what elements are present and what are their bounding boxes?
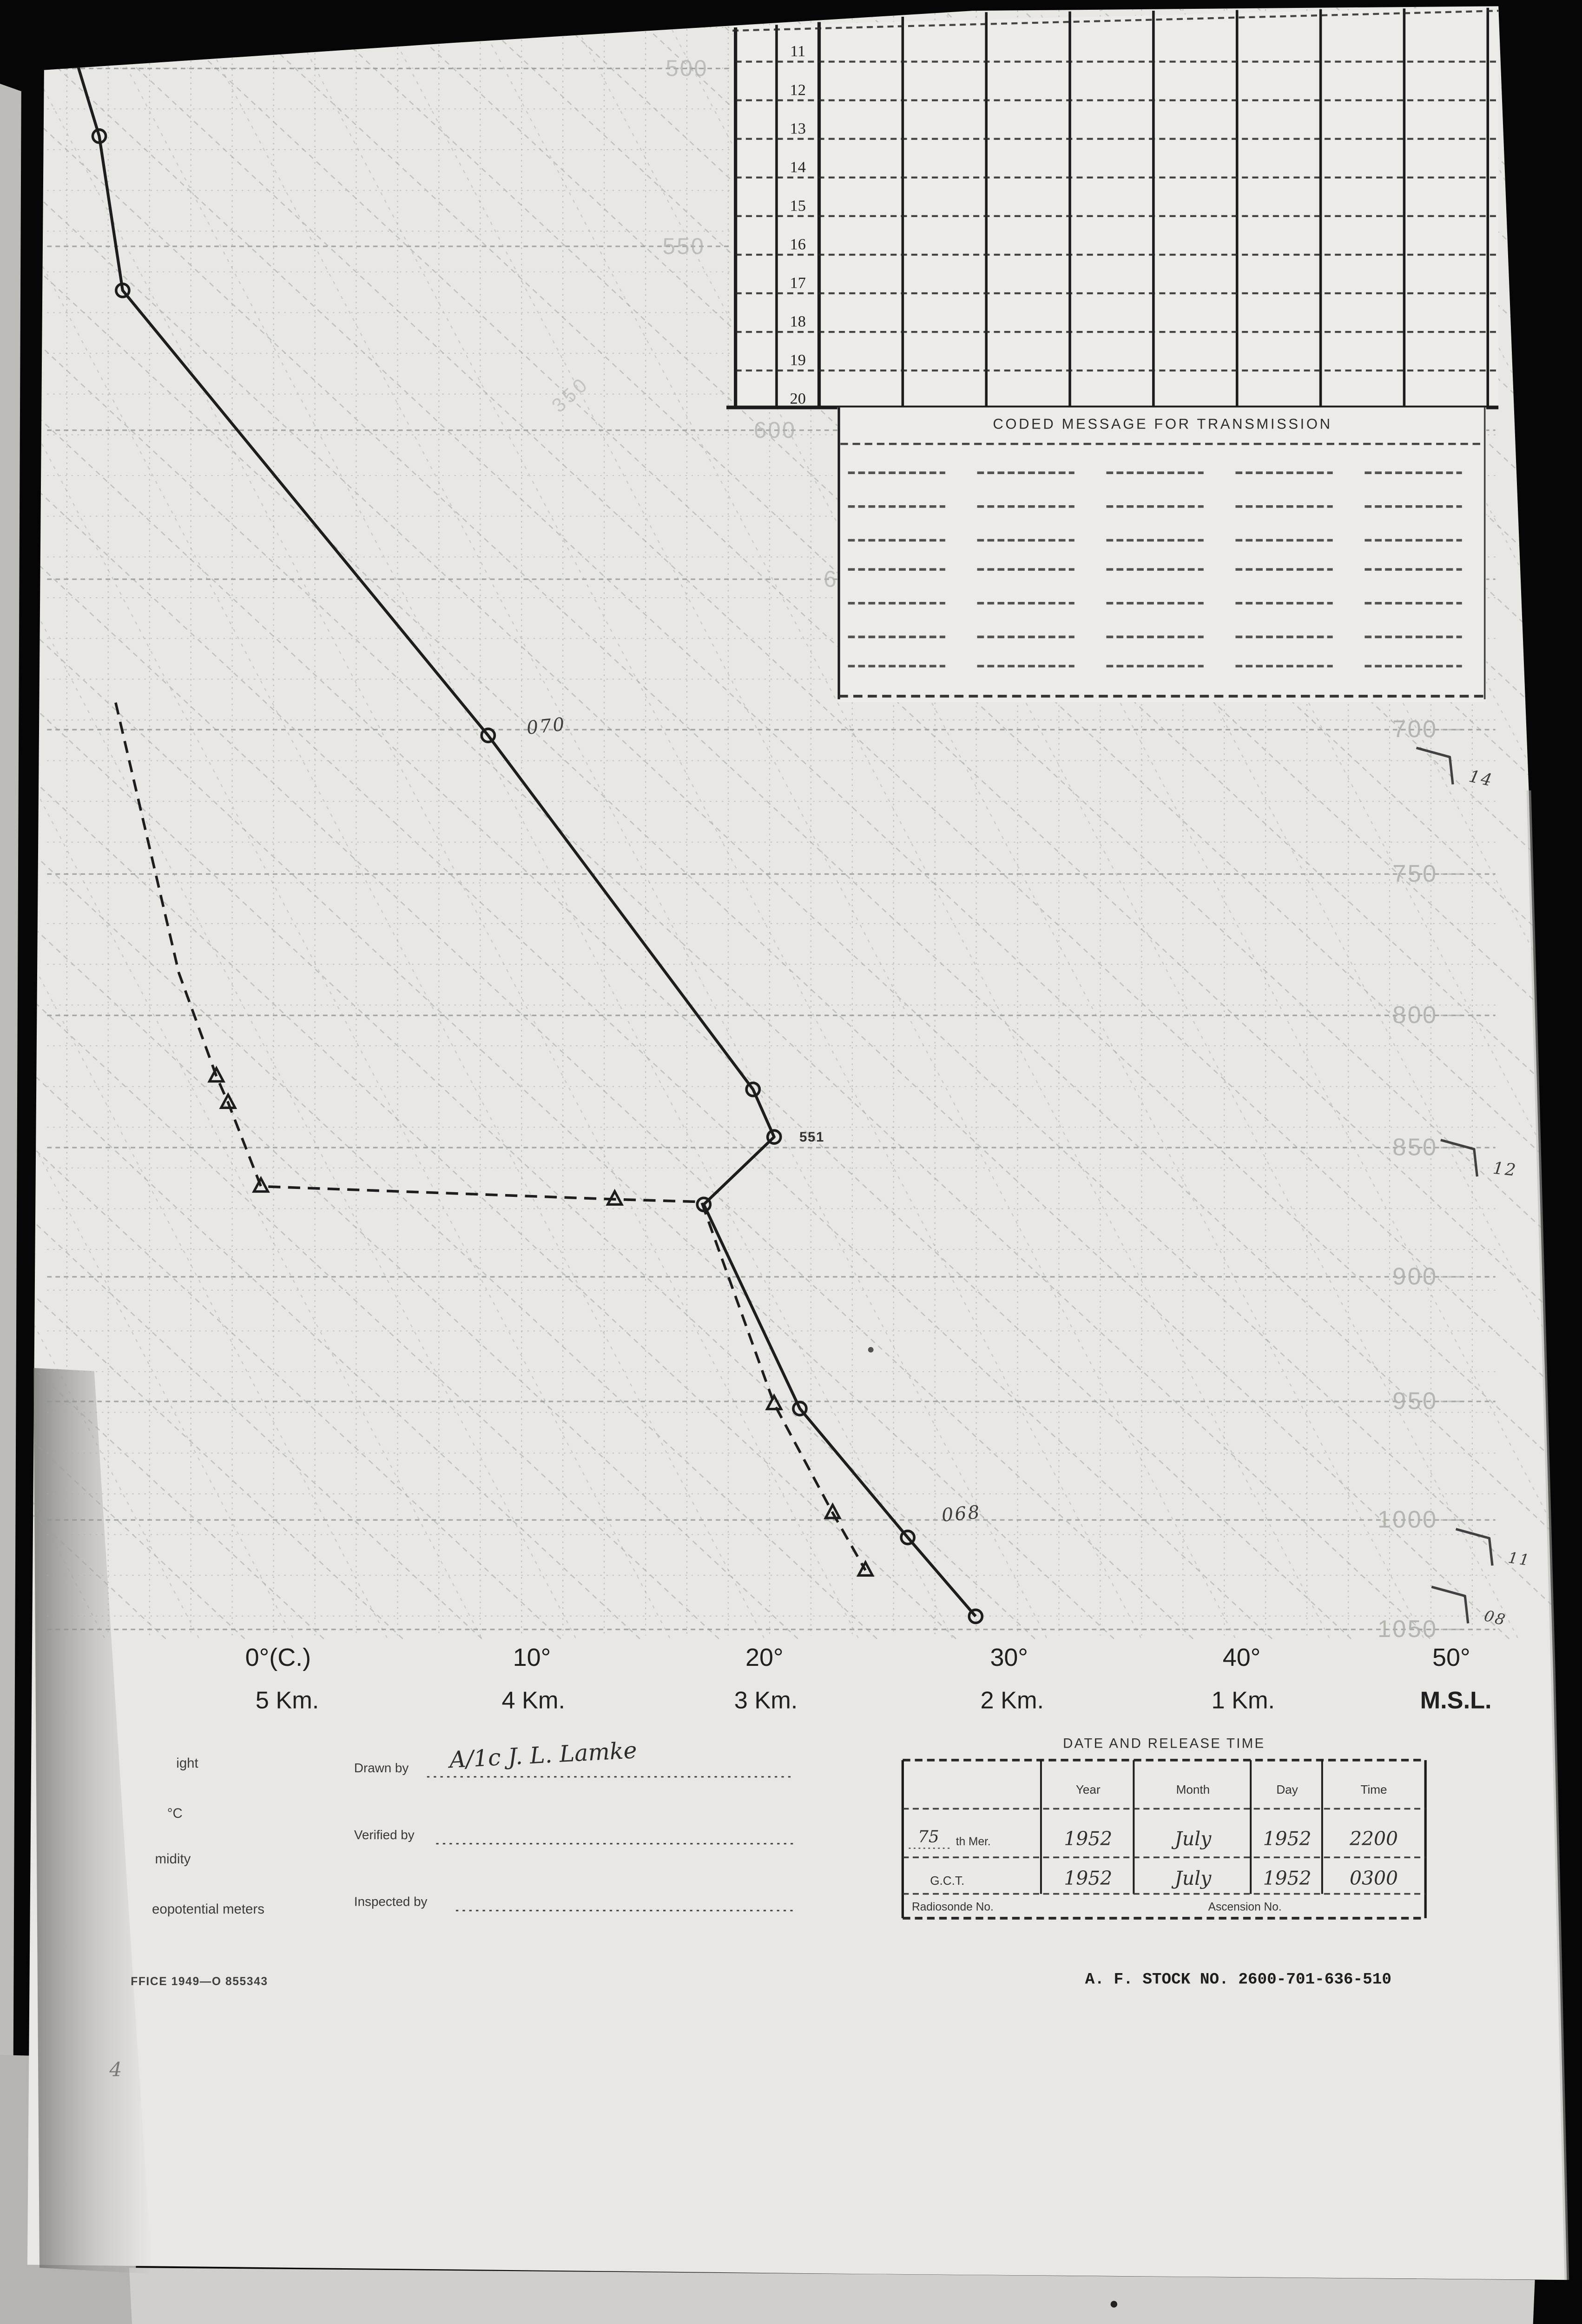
release-value-time: 2200 (1349, 1828, 1398, 1850)
isobar-label-500: 500 (666, 56, 708, 81)
af-stock-number: A. F. STOCK NO. 2600-701-636-510 (1085, 1971, 1391, 1989)
table-row-number: 12 (790, 81, 806, 99)
altitude-axis-label: 5 Km. (256, 1687, 319, 1714)
temp-axis-label: 20° (745, 1644, 784, 1671)
temp-axis-label: 50° (1432, 1644, 1470, 1671)
isobar-label-1000: 1000 (1378, 1506, 1437, 1533)
coded-box-background (837, 408, 1486, 702)
isobar-label-700: 700 (1392, 716, 1437, 743)
release-table-title: DATE AND RELEASE TIME (1063, 1736, 1265, 1751)
handwritten-note: 068 (941, 1502, 982, 1526)
coded-box-title: CODED MESSAGE FOR TRANSMISSION (993, 416, 1332, 432)
data-entry-table: 11121314151617181920 (726, 6, 1498, 407)
print-office-number: FFICE 1949—O 855343 (131, 1975, 268, 1988)
table-row-number: 18 (790, 313, 806, 330)
isobar-label-950: 950 (1392, 1387, 1437, 1414)
temp-axis-label: 10° (513, 1644, 551, 1671)
release-header-time: Time (1360, 1783, 1387, 1796)
release-header-year: Year (1076, 1783, 1101, 1796)
temp-axis-label: 0°(C.) (245, 1644, 311, 1671)
table-row-number: 11 (790, 42, 805, 60)
release-row-label: th Mer. (956, 1835, 991, 1848)
coded-message-box: CODED MESSAGE FOR TRANSMISSION (837, 408, 1486, 702)
release-row-label: G.C.T. (930, 1874, 964, 1888)
table-row-number: 15 (790, 197, 806, 214)
temp-axis-label: 40° (1223, 1644, 1261, 1671)
isobar-label-750: 750 (1392, 860, 1437, 887)
table-row-number: 14 (790, 158, 806, 176)
margin-label-cutoff: °C (167, 1806, 183, 1821)
handwritten-note: 4 (109, 2059, 123, 2081)
release-value-year: 1952 (1064, 1867, 1112, 1889)
scanned-adiabatic-chart: 500550600650350 11121314151617181920 COD… (0, 0, 1582, 2324)
margin-label-cutoff: ight (176, 1756, 198, 1771)
handwritten-note: 12 (1492, 1159, 1518, 1180)
temp-axis-label: 30° (990, 1644, 1028, 1671)
drawn-by-label: Drawn by (354, 1761, 409, 1775)
printed-point-label: 551 (799, 1129, 824, 1145)
isobar-label-800: 800 (1392, 1002, 1437, 1029)
release-value-month: July (1171, 1867, 1212, 1889)
table-row-number: 20 (790, 390, 806, 408)
isobar-label-850: 850 (1392, 1134, 1437, 1161)
release-value-day: 1952 (1263, 1828, 1312, 1850)
table-row-number: 13 (790, 119, 806, 137)
table-row-number: 17 (790, 274, 806, 292)
altitude-axis-label: 2 Km. (980, 1687, 1044, 1714)
release-header-month: Month (1176, 1783, 1210, 1796)
scan-speck (1111, 2301, 1117, 2307)
altitude-axis-label: 4 Km. (501, 1687, 565, 1714)
isobar-label-1050: 1050 (1378, 1616, 1437, 1643)
table-row-number: 19 (790, 351, 806, 369)
release-value-year: 1952 (1064, 1828, 1112, 1850)
altitude-axis-label: 1 Km. (1212, 1687, 1275, 1714)
verified-by-label: Verified by (354, 1828, 415, 1842)
ink-speck (868, 1347, 874, 1353)
isobar-label-600: 600 (754, 418, 797, 443)
table-background (732, 6, 1498, 407)
handwritten-note: 11 (1507, 1549, 1532, 1569)
release-value-day: 1952 (1263, 1867, 1312, 1889)
altitude-axis-label: M.S.L. (1420, 1687, 1492, 1714)
margin-label-cutoff: midity (155, 1851, 191, 1867)
margin-label-cutoff: eopotential meters (152, 1901, 264, 1917)
scan-canvas: 500550600650350 11121314151617181920 COD… (0, 0, 1582, 2324)
isobar-label-550: 550 (663, 234, 705, 259)
table-row-number: 16 (790, 236, 806, 253)
altitude-axis-label: 3 Km. (734, 1687, 798, 1714)
release-value-time: 0300 (1350, 1867, 1398, 1889)
handwritten-note: 070 (526, 714, 567, 739)
isobar-label-900: 900 (1392, 1263, 1437, 1290)
release-header-day: Day (1276, 1783, 1298, 1796)
release-time-table: DATE AND RELEASE TIME YearMonthDayTime75… (903, 1736, 1425, 1918)
release-value-month: July (1171, 1828, 1212, 1850)
ascension-no-label: Ascension No. (1208, 1901, 1282, 1914)
release-row-label-handwritten: 75 (918, 1827, 939, 1846)
radiosonde-no-label: Radiosonde No. (912, 1901, 994, 1914)
inspected-by-label: Inspected by (354, 1895, 428, 1909)
